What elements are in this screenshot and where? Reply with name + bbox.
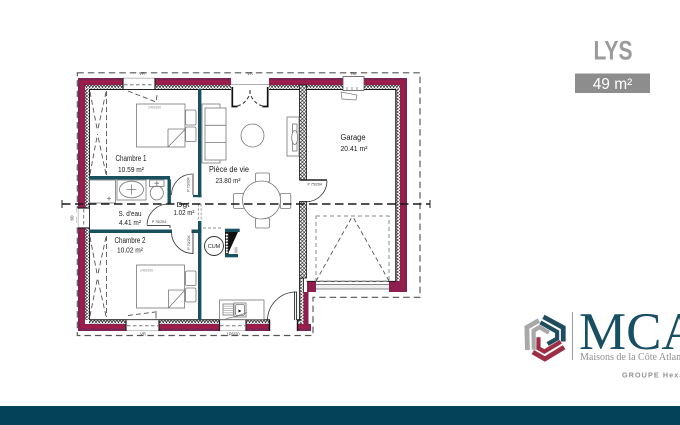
svg-text:140x200: 140x200 (140, 269, 153, 273)
svg-text:1.02 m²: 1.02 m² (174, 208, 195, 217)
svg-text:P 70/204: P 70/204 (187, 177, 191, 191)
svg-text:4.41 m²: 4.41 m² (119, 218, 141, 227)
svg-text:P 70/204: P 70/204 (187, 235, 191, 249)
svg-text:CUM: CUM (208, 244, 221, 250)
svg-text:Chambre 2: Chambre 2 (115, 236, 146, 245)
svg-text:Maisons de la Côte Atlantique: Maisons de la Côte Atlantique (580, 352, 680, 363)
svg-text:S. d'eau: S. d'eau (119, 209, 142, 218)
svg-text:10.59 m²: 10.59 m² (118, 165, 144, 174)
svg-text:VR: VR (247, 71, 253, 76)
svg-text:LYS: LYS (594, 36, 633, 66)
svg-text:49 m²: 49 m² (593, 76, 633, 93)
svg-text:GROUPE Hexaom: GROUPE Hexaom (622, 371, 680, 380)
svg-text:23.80 m²: 23.80 m² (216, 176, 241, 185)
svg-text:Pièce de vie: Pièce de vie (209, 165, 249, 174)
svg-text:TM: TM (350, 71, 357, 76)
svg-text:1P6/20: 1P6/20 (226, 332, 240, 337)
svg-text:VR: VR (140, 332, 146, 337)
svg-text:20.41 m²: 20.41 m² (341, 144, 368, 153)
svg-text:10.02 m²: 10.02 m² (117, 246, 143, 255)
svg-text:60: 60 (70, 215, 75, 221)
svg-text:VR: VR (139, 71, 145, 76)
svg-text:140x200: 140x200 (148, 106, 161, 110)
svg-text:P 75/204: P 75/204 (152, 220, 166, 224)
svg-text:P 75/204: P 75/204 (308, 183, 322, 187)
svg-text:Chambre 1: Chambre 1 (116, 154, 147, 163)
svg-text:Garage: Garage (341, 133, 367, 142)
